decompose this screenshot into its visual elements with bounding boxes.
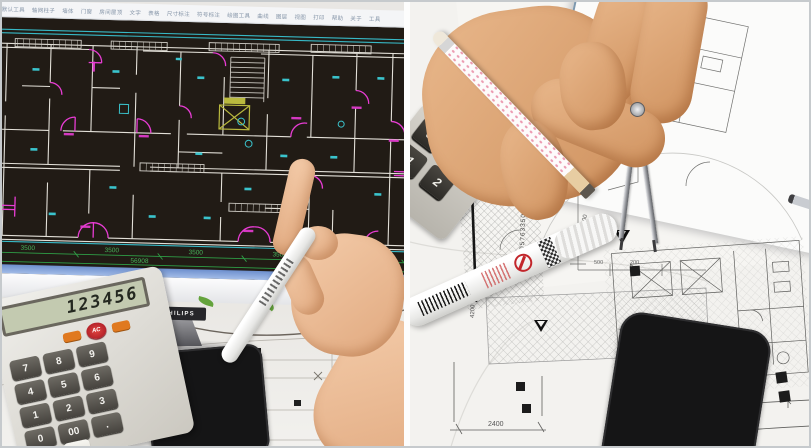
cad-dim-3500-3: 3500 — [188, 249, 203, 256]
photo-collage: 3500 3500 3500 3500 3500 56908 7000 默认工具… — [0, 0, 811, 448]
calculator-ac-key: AC — [85, 321, 108, 341]
calculator-digit-key: . — [90, 412, 124, 438]
bp-dim-2400: 2400 — [488, 421, 504, 428]
calculator-orange-key — [111, 319, 130, 332]
calculator-digit-key: 3 — [85, 388, 119, 414]
calculator-digit-key: 6 — [80, 365, 114, 391]
calculator-digit-key: 9 — [75, 341, 109, 367]
cad-menu-item: 绘图工具 — [227, 11, 250, 20]
cad-menu-item: 默认工具 — [2, 5, 25, 14]
calculator-digit-key: 7 — [9, 355, 43, 381]
cad-menu-item: 轴网柱子 — [32, 5, 55, 14]
cad-dim-total: 56908 — [130, 258, 149, 265]
bp-dim-500: 500 — [594, 260, 603, 266]
calculator-digit-key: 0 — [24, 426, 58, 446]
left-photo-cad-workstation: 3500 3500 3500 3500 3500 56908 7000 默认工具… — [2, 2, 404, 446]
cad-menu-item: 表格 — [148, 8, 160, 16]
calculator-digit-key: 2 — [52, 395, 86, 421]
calculator-digit-key: 4 — [14, 379, 48, 405]
cad-menu-item: 打印 — [313, 13, 325, 21]
bp-dim-4200: 4200 — [470, 304, 476, 318]
calculator-digit-keys: 789456123000. — [9, 341, 124, 446]
cad-menu-item: 曲线 — [257, 11, 269, 19]
cad-menu-item: 帮助 — [332, 13, 344, 21]
calculator-orange-key — [62, 330, 81, 343]
collage-divider — [404, 2, 410, 446]
marker-logo-icon — [511, 251, 535, 275]
calculator-digit-key: 8 — [42, 348, 76, 374]
cad-menu-item: 关于 — [350, 14, 362, 22]
calculator-digit-key: 1 — [19, 402, 53, 428]
bp-axis-label: 05763350 — [519, 213, 527, 250]
cad-menu-item: 文字 — [129, 8, 141, 16]
right-photo-drafting-table: 2400 9000 30700 7900 2000 500 200 4200 0… — [410, 2, 811, 446]
bp-dim-200: 200 — [630, 260, 639, 266]
cad-dim-3500-1: 3500 — [20, 245, 35, 252]
cad-menu-item: 视图 — [294, 12, 306, 20]
marker-red-label — [481, 262, 512, 288]
cad-menu-item: 房间屋顶 — [99, 7, 122, 16]
cad-menu-item: 图层 — [276, 12, 288, 20]
cad-menu-item: 符号标注 — [197, 10, 220, 19]
calculator-display-value: 123456 — [65, 283, 141, 318]
cad-menu-item: 墙体 — [62, 6, 74, 14]
compass-hub — [630, 102, 645, 117]
cad-dim-3500-2: 3500 — [104, 247, 119, 254]
cad-menu-item: 工具 — [369, 14, 381, 22]
cad-menu-item: 尺寸标注 — [167, 9, 190, 18]
cad-menu-item: 门窗 — [81, 7, 93, 15]
calculator-digit-key: 5 — [47, 372, 81, 398]
